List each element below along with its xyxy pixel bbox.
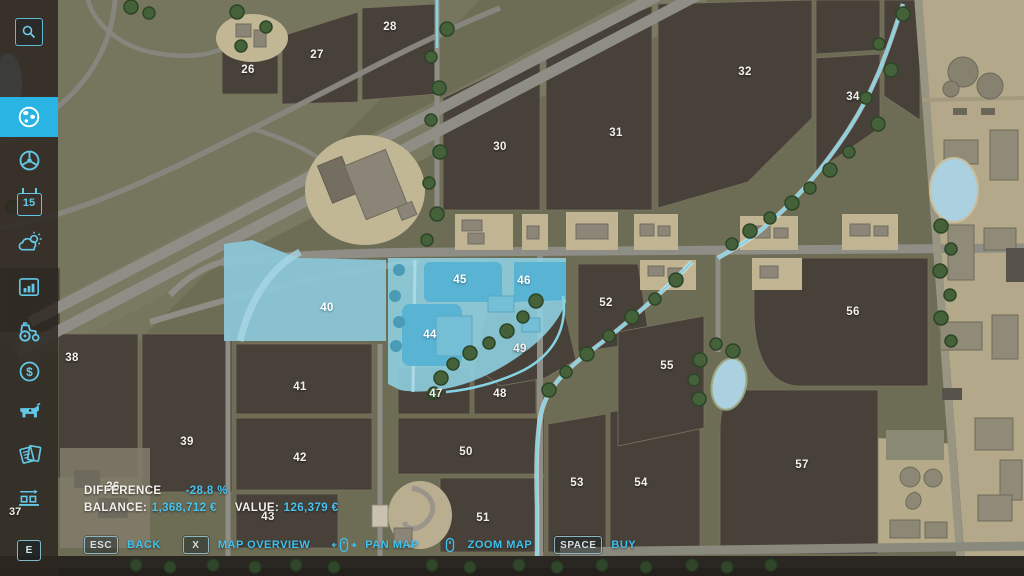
dollar-icon: $ <box>17 359 42 384</box>
field-label-55[interactable]: 55 <box>660 360 674 372</box>
field-label-50[interactable]: 50 <box>459 446 473 458</box>
globe-icon <box>16 104 42 130</box>
tractor-icon <box>16 318 43 345</box>
field-label-32[interactable]: 32 <box>738 66 752 78</box>
field-label-51[interactable]: 51 <box>476 512 490 524</box>
field-label-38[interactable]: 38 <box>65 352 79 364</box>
magnifier-icon <box>15 18 43 46</box>
documents-icon <box>15 440 43 468</box>
e-key: E <box>17 540 41 561</box>
difference-value: -28.8 % <box>185 485 227 497</box>
value-value: 126,379 € <box>284 502 339 514</box>
bar-chart-icon <box>16 274 42 300</box>
balance-label: BALANCE: <box>84 502 147 514</box>
sidebar: 15 <box>0 0 58 576</box>
calendar-day: 15 <box>18 197 41 209</box>
field-label-53[interactable]: 53 <box>570 477 584 489</box>
field-label-56[interactable]: 56 <box>846 306 860 318</box>
sidebar-item-statistics[interactable] <box>0 267 58 307</box>
sidebar-item-search[interactable] <box>0 12 58 52</box>
svg-text:$: $ <box>26 364 33 378</box>
field-label-45[interactable]: 45 <box>453 274 467 286</box>
sidebar-item-interact[interactable]: E <box>0 530 58 570</box>
cow-icon <box>15 397 43 425</box>
difference-label: DIFFERENCE <box>84 485 161 497</box>
sidebar-item-weather[interactable] <box>0 223 58 263</box>
field-label-39[interactable]: 39 <box>180 436 194 448</box>
purchase-stats: DIFFERENCE-28.8 % BALANCE: 1,368,712 €VA… <box>84 482 338 516</box>
hint-zoom-map[interactable]: ZOOM MAP <box>441 536 533 554</box>
calendar-icon: 15 <box>17 193 42 216</box>
field-label-41[interactable]: 41 <box>293 381 307 393</box>
field-label-52[interactable]: 52 <box>599 297 613 309</box>
field-label-54[interactable]: 54 <box>634 477 648 489</box>
sidebar-item-calendar[interactable]: 15 <box>0 183 58 223</box>
hint-map-overview[interactable]: X MAP OVERVIEW <box>183 536 310 554</box>
field-label-48[interactable]: 48 <box>493 388 507 400</box>
sidebar-item-finances[interactable]: $ <box>0 351 58 391</box>
esc-key: ESC <box>84 536 118 554</box>
map-screen: 2627283031323436383940414243444546474849… <box>0 0 1024 576</box>
steering-wheel-icon <box>17 148 42 173</box>
field-label-40[interactable]: 40 <box>320 302 334 314</box>
weather-icon <box>16 230 43 257</box>
hint-pan-map[interactable]: PAN MAP <box>332 536 418 554</box>
sidebar-item-contracts[interactable] <box>0 434 58 474</box>
field-label-49[interactable]: 49 <box>513 343 527 355</box>
mouse-zoom-icon <box>441 536 459 554</box>
balance-value: 1,368,712 € <box>152 502 217 514</box>
sidebar-item-animals[interactable] <box>0 391 58 431</box>
field-label-42[interactable]: 42 <box>293 452 307 464</box>
hint-back[interactable]: ESC BACK <box>84 536 161 554</box>
sidebar-item-vehicles[interactable] <box>0 140 58 180</box>
field-label-44[interactable]: 44 <box>423 329 437 341</box>
sidebar-item-garage[interactable] <box>0 311 58 351</box>
field-label-28[interactable]: 28 <box>383 21 397 33</box>
space-key: SPACE <box>554 536 602 554</box>
production-count: 37 <box>9 506 21 518</box>
field-label-47[interactable]: 47 <box>429 388 443 400</box>
field-label-26[interactable]: 26 <box>241 64 255 76</box>
field-label-46[interactable]: 46 <box>517 275 531 287</box>
x-key: X <box>183 536 209 554</box>
field-label-34[interactable]: 34 <box>846 91 860 103</box>
field-label-57[interactable]: 57 <box>795 459 809 471</box>
sidebar-item-map[interactable] <box>0 97 58 137</box>
field-label-27[interactable]: 27 <box>310 49 324 61</box>
mouse-pan-icon <box>332 536 356 554</box>
sidebar-item-production[interactable]: 37 <box>0 477 58 517</box>
field-label-31[interactable]: 31 <box>609 127 623 139</box>
input-hints-bar: ESC BACK X MAP OVERVIEW PAN MAP <box>84 535 636 555</box>
field-label-30[interactable]: 30 <box>493 141 507 153</box>
value-label: VALUE: <box>235 502 279 514</box>
hint-buy[interactable]: SPACE BUY <box>554 536 636 554</box>
